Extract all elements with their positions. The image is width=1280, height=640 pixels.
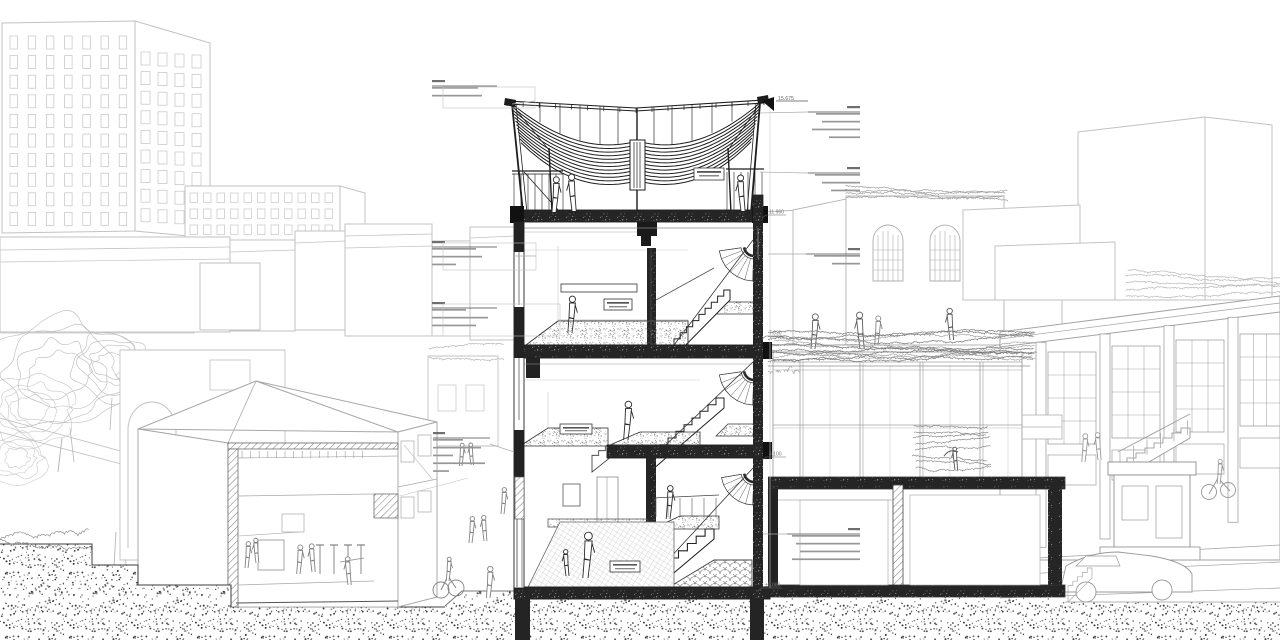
svg-text:11.960: 11.960 xyxy=(769,210,784,216)
svg-text:7.830: 7.830 xyxy=(769,331,782,337)
svg-text:4.100: 4.100 xyxy=(769,452,782,458)
svg-text:±0.000: ±0.000 xyxy=(765,583,780,589)
